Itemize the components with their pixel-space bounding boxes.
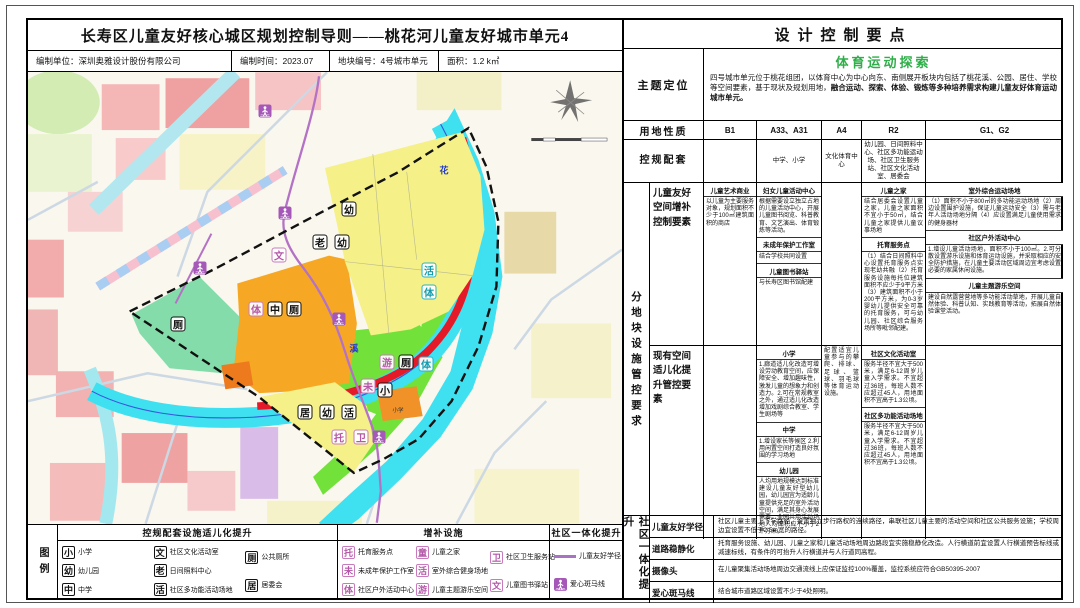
cell-text: 根据需要设立独立占地的儿童活动中心，开展儿童图书阅览、科普教育、文艺演出、体育锻… <box>757 197 821 238</box>
legend-item: 托托育服务点 <box>342 546 414 559</box>
cell-header: 儿童主题游乐空间 <box>926 278 1063 293</box>
legend-glyph-box: 未 <box>342 564 355 577</box>
map-marker-文: 文 <box>272 248 287 263</box>
integration-section: 社区一体化提升 儿童友好学径社区儿童主要上下学路径，设置独立步行路权的连续路径，… <box>624 516 1063 603</box>
legend-item-label: 居委会 <box>261 580 282 590</box>
map-marker-幼: 幼 <box>335 235 350 250</box>
legend-item-label: 小学 <box>78 547 92 557</box>
info-org: 编制单位：深圳奥雅设计股份有限公司 <box>28 51 232 71</box>
integration-row: 摄像头在儿童聚集活动场地周边交通流线上应保证监控100%覆盖，监控系统应符合GB… <box>650 560 1063 582</box>
block-control-label: 分地块设施管控要求 <box>624 183 650 539</box>
support-label: 控规配套 <box>624 140 704 182</box>
cell-text: 与长寿区图书馆配建 <box>757 278 821 289</box>
integration-row-text: 在儿童聚集活动场地周边交通流线上应保证监控100%覆盖，监控系统应符合GB503… <box>714 560 1063 581</box>
info-block-no: 地块编号：4号城市单元 <box>330 51 439 71</box>
legend-item: 体社区户外活动中心 <box>342 583 414 596</box>
design-control-panel: 设计控制要点 主题定位 体育运动探索 四号城市单元位于桃花组团，以体育中心为中心… <box>624 20 1063 598</box>
legend-glyph-box: 幼 <box>62 564 75 577</box>
legend-item: 老日间照料中心 <box>154 564 244 577</box>
school-route-line-icon <box>554 555 576 558</box>
legend-item-label: 社区多功能活动场地 <box>170 585 233 595</box>
sub2-col-b1 <box>704 346 757 539</box>
cell-text: 配置适宜儿童参与的攀爬、排球、足球、篮球、羽毛球等体育运动设施。 <box>822 346 861 400</box>
land-use-row: 用地性质 B1 A33、A31 A4 R2 G1、G2 <box>624 121 1063 140</box>
theme-highlight: 体育运动探索 <box>710 52 1057 71</box>
love-zebra-crossing-icon <box>554 578 567 591</box>
legend-glyph-box: 活 <box>154 583 167 596</box>
legend-item: 未未成年保护工作室 <box>342 564 414 577</box>
legend-group: 社区一体化提升儿童友好学径爱心斑马线 <box>550 525 623 600</box>
legend-group-title: 增补设施 <box>338 525 549 541</box>
legend-group-title: 控规配套设施适儿化提升 <box>58 525 337 541</box>
cell-text: 服务半径不宜大于500米，满足6-12周岁儿童入学需求。不宜超过36班，每班人数… <box>862 360 925 408</box>
legend-item: 厕公共厕所 <box>245 551 335 564</box>
legend-glyph-box: 托 <box>342 546 355 559</box>
support-g <box>926 140 1063 182</box>
cell-header: 社区文化活动室 <box>862 346 925 360</box>
support-r2: 幼儿园、日间照料中心、社区多功能运动场、社区卫生服务站、社区文化活动室、居委会 <box>862 140 926 182</box>
integration-row: 儿童友好学径社区儿童主要上下学路径，设置独立步行路权的连续路径，串联社区儿童主要… <box>650 516 1063 538</box>
legend-item: 活社区多功能活动场地 <box>154 583 244 596</box>
map-marker-未: 未 <box>361 379 376 394</box>
map-marker-厕: 厕 <box>287 302 302 317</box>
land-use-r2: R2 <box>862 121 926 139</box>
map-marker-厕: 厕 <box>399 355 414 370</box>
sub1-col-r2: 儿童之家结合居委会设置儿童之家，儿童之家面积不宜小于50㎡，结合儿童之家提供儿童… <box>862 183 926 345</box>
legend-group: 控规配套设施适儿化提升小小学幼幼儿园中中学文社区文化活动室老日间照料中心活社区多… <box>58 525 338 600</box>
map-marker-体: 体 <box>422 285 437 300</box>
integration-row-text: 结合城市道路区域设置不少于4处照明。 <box>714 582 1063 603</box>
integration-row-text: 社区儿童主要上下学路径，设置独立步行路权的连续路径，串联社区儿童主要的活动空间和… <box>714 516 1063 537</box>
cell-text: 建设自然露营营地等多功能活动草地，开展儿童自然体验、科普认知、实践教育等活动，拓… <box>926 293 1063 319</box>
legend-glyph-box: 体 <box>342 583 355 596</box>
supplement-control-subrow: 儿童友好空间增补控制要素 儿童艺术商业以儿童为主要服务对象，规划面积不少于100… <box>650 183 1063 346</box>
cell-text: （1）面积不小于800㎡的多功能运动场地（2）周边设置围护设施，保证儿童运动安全… <box>926 197 1063 231</box>
sub1-col-a33: 妇女儿童活动中心根据需要设立独立占地的儿童活动中心，开展儿童图书阅览、科普教育、… <box>757 183 822 345</box>
sub1-col-g: 室外综合运动场地（1）面积不小于800㎡的多功能运动场地（2）周边设置围护设施，… <box>926 183 1063 345</box>
map-basemap <box>28 72 622 524</box>
sub1-col-a4 <box>822 183 862 345</box>
legend-glyph-box: 居 <box>245 579 258 592</box>
legend-item-label: 室外综合健身场地 <box>432 566 488 576</box>
integration-row-label: 道路稳静化 <box>650 538 714 559</box>
integration-row: 道路稳静化托育服务设施、幼儿园、儿童之家和儿童活动场地周边路段宜实施稳静化改造。… <box>650 538 1063 560</box>
info-date: 编制时间：2023.07 <box>232 51 330 71</box>
legend-item: 文儿童图书驿站 <box>490 579 555 592</box>
info-area: 面积：1.2 k㎡ <box>439 51 622 71</box>
love-zebra-crossing-icon <box>194 262 207 275</box>
map-marker-活: 活 <box>422 263 437 278</box>
sub1-col-b1: 儿童艺术商业以儿童为主要服务对象，规划面积不少于100㎡建筑面积的商店 <box>704 183 757 345</box>
map-marker-厕: 厕 <box>171 317 186 332</box>
sub2-col-r2: 社区文化活动室服务半径不宜大于500米，满足6-12周岁儿童入学需求。不宜超过3… <box>862 346 926 539</box>
legend-item: 爱心斑马线 <box>554 578 621 591</box>
legend-item-label: 中学 <box>78 585 92 595</box>
legend-item: 游儿童主题游乐空间 <box>416 583 488 596</box>
sub2-col-a4: 配置适宜儿童参与的攀爬、排球、足球、篮球、羽毛球等体育运动设施。 <box>822 346 862 539</box>
integration-label: 社区一体化提升 <box>624 516 650 603</box>
legend-group: 增补设施托托育服务点未未成年保护工作室体社区户外活动中心童儿童之家活室外综合健身… <box>338 525 550 600</box>
map-label: 花 <box>439 164 448 177</box>
cell-header: 中学 <box>757 422 821 437</box>
sub2-col-a33: 小学1.廊道适儿化改造可增设劳动教育空间，应保障安全、增加趣味性，激发儿童的想象… <box>757 346 822 539</box>
legend-item: 中中学 <box>62 583 152 596</box>
love-zebra-crossing-icon <box>259 105 272 118</box>
legend-item-label: 社区卫生服务站 <box>506 552 555 562</box>
legend-item-label: 社区文化活动室 <box>170 547 219 557</box>
legend-item-label: 未成年保护工作室 <box>358 566 414 576</box>
map-marker-幼: 幼 <box>320 405 335 420</box>
love-zebra-crossing-icon <box>373 431 386 444</box>
legend-glyph-box: 活 <box>416 564 429 577</box>
cell-header: 幼儿园 <box>757 462 821 477</box>
integration-row-label: 儿童友好学径 <box>650 516 714 537</box>
map-marker-活: 活 <box>342 405 357 420</box>
map-marker-游: 游 <box>380 355 395 370</box>
legend-item: 幼幼儿园 <box>62 564 152 577</box>
land-use-g: G1、G2 <box>926 121 1063 139</box>
title-info-bar: 编制单位：深圳奥雅设计股份有限公司 编制时间：2023.07 地块编号：4号城市… <box>28 51 622 72</box>
integration-row-label: 摄像头 <box>650 560 714 581</box>
integration-row-text: 托育服务设施、幼儿园、儿童之家和儿童活动场地周边路段宜实施稳静化改造。人行横道前… <box>714 538 1063 559</box>
legend-title: 图例 <box>28 525 58 600</box>
support-row: 控规配套 中学、小学 文化体育中心 幼儿园、日间照料中心、社区多功能运动场、社区… <box>624 140 1063 183</box>
cell-header: 托育服务点 <box>862 237 925 252</box>
map-marker-老: 老 <box>313 235 328 250</box>
map-marker-居: 居 <box>298 405 313 420</box>
page-title: 长寿区儿童友好核心城区规划控制导则——桃花河儿童友好城市单元4 <box>28 20 622 51</box>
cell-header: 儿童艺术商业 <box>704 183 756 197</box>
sub1-label: 儿童友好空间增补控制要素 <box>650 183 704 345</box>
legend-item-label: 儿童主题游乐空间 <box>432 585 488 595</box>
cell-text: 1.增设儿童活动场地，面积不小于100㎡。2.可分散设置游乐设施和体育运动设施，… <box>926 245 1063 279</box>
cell-header: 室外综合运动场地 <box>926 183 1063 197</box>
land-use-label: 用地性质 <box>624 121 704 139</box>
legend-item-label: 日间照料中心 <box>170 566 212 576</box>
map-marker-小: 小 <box>378 383 393 398</box>
cell-text: 结合居委会设置儿童之家，儿童之家面积不宜小于50㎡，结合儿童之家提供儿童议事场地 <box>862 197 925 238</box>
integration-row-label: 爱心斑马线 <box>650 582 714 603</box>
cell-text: 服务半径不宜大于500米，满足6-12周岁儿童入学需求。不宜超过36班，每班人数… <box>862 422 925 469</box>
legend-item: 文社区文化活动室 <box>154 546 244 559</box>
cell-header: 未成年保护工作室 <box>757 237 821 252</box>
legend-glyph-box: 厕 <box>245 551 258 564</box>
legend-item: 小小学 <box>62 546 152 559</box>
legend-glyph-box: 中 <box>62 583 75 596</box>
panel-title: 设计控制要点 <box>624 20 1063 49</box>
love-zebra-crossing-icon <box>333 313 346 326</box>
cell-header: 小学 <box>757 346 821 360</box>
legend-item-label: 儿童之家 <box>432 547 460 557</box>
block-control-section: 分地块设施管控要求 儿童友好空间增补控制要素 儿童艺术商业以儿童为主要服务对象，… <box>624 183 1063 516</box>
cell-text: 1.增设家长等候区 2.利用闲置空间打造良好氛围的学习场地 <box>757 437 821 464</box>
support-b1 <box>704 140 757 182</box>
legend-item: 活室外综合健身场地 <box>416 564 488 577</box>
legend-item: 童儿童之家 <box>416 546 488 559</box>
plan-sheet: 长寿区儿童友好核心城区规划控制导则——桃花河儿童友好城市单元4 编制单位：深圳奥… <box>0 0 1080 608</box>
legend-glyph-box: 文 <box>154 546 167 559</box>
map-marker-体: 体 <box>419 357 434 372</box>
legend-item-label: 公共厕所 <box>261 552 289 562</box>
map-label: 溪 <box>349 342 358 355</box>
map-marker-体: 体 <box>249 302 264 317</box>
sub2-label: 现有空间适儿化提升管控要素 <box>650 346 704 539</box>
legend-item-label: 社区户外活动中心 <box>358 585 414 595</box>
cell-text: 以儿童为主要服务对象，规划面积不少于100㎡建筑面积的商店 <box>704 197 756 230</box>
legend-glyph-box: 游 <box>416 583 429 596</box>
legend: 图例 控规配套设施适儿化提升小小学幼幼儿园中中学文社区文化活动室老日间照料中心活… <box>28 525 622 600</box>
map-marker-中: 中 <box>268 302 283 317</box>
cell-header: 儿童图书驿站 <box>757 263 821 278</box>
sheet-frame: 长寿区儿童友好核心城区规划控制导则——桃花河儿童友好城市单元4 编制单位：深圳奥… <box>26 18 1063 600</box>
legend-item-label: 爱心斑马线 <box>570 579 605 589</box>
legend-group-title: 社区一体化提升 <box>550 525 623 541</box>
planning-map: 厕体中厕文幼老幼活体游厕体未小居幼活托卫花溪小学 <box>28 72 622 525</box>
cell-text: 1.廊道适儿化改造可增设劳动教育空间，应保障安全、增加趣味性，激发儿童的想象力和… <box>757 360 821 423</box>
legend-glyph-box: 文 <box>490 579 503 592</box>
legend-item-label: 儿童图书驿站 <box>506 580 548 590</box>
legend-glyph-box: 卫 <box>490 551 503 564</box>
legend-item: 卫社区卫生服务站 <box>490 551 555 564</box>
love-zebra-crossing-icon <box>279 207 292 220</box>
theme-row: 主题定位 体育运动探索 四号城市单元位于桃花组团，以体育中心为中心向东、南侧展开… <box>624 49 1063 121</box>
support-a33: 中学、小学 <box>757 140 822 182</box>
theme-label: 主题定位 <box>624 49 704 120</box>
left-column: 长寿区儿童友好核心城区规划控制导则——桃花河儿童友好城市单元4 编制单位：深圳奥… <box>28 20 624 598</box>
support-a4: 文化体育中心 <box>822 140 862 182</box>
cell-header: 社区户外活动中心 <box>926 230 1063 245</box>
cell-header: 儿童之家 <box>862 183 925 197</box>
legend-item-label: 幼儿园 <box>78 566 99 576</box>
land-use-a33: A33、A31 <box>757 121 822 139</box>
legend-glyph-box: 小 <box>62 546 75 559</box>
legend-glyph-box: 童 <box>416 546 429 559</box>
sub2-col-g <box>926 346 1063 539</box>
legend-item: 居居委会 <box>245 579 335 592</box>
map-marker-幼: 幼 <box>342 202 357 217</box>
legend-item-label: 儿童友好学径 <box>579 551 621 561</box>
land-use-b1: B1 <box>704 121 757 139</box>
map-marker-托: 托 <box>332 430 347 445</box>
map-marker-卫: 卫 <box>354 430 369 445</box>
theme-text: 四号城市单元位于桃花组团，以体育中心为中心向东、南侧展开板块内包括了桃花溪、公园… <box>710 73 1057 102</box>
cell-header: 妇女儿童活动中心 <box>757 183 821 197</box>
scale-bar <box>531 138 607 141</box>
cell-header: 社区多功能活动场地 <box>862 407 925 422</box>
existing-space-subrow: 现有空间适儿化提升管控要素 小学1.廊道适儿化改造可增设劳动教育空间，应保障安全… <box>650 346 1063 539</box>
legend-item-label: 托育服务点 <box>358 547 393 557</box>
integration-row: 爱心斑马线结合城市道路区域设置不少于4处照明。 <box>650 582 1063 603</box>
cell-text: （1）结合日间照料中心设置托育服务点实现老幼共融（2）托育服务设施每托位建筑面积… <box>862 252 925 335</box>
legend-glyph-box: 老 <box>154 564 167 577</box>
legend-item: 儿童友好学径 <box>554 551 621 561</box>
map-label: 小学 <box>392 406 403 414</box>
land-use-a4: A4 <box>822 121 862 139</box>
